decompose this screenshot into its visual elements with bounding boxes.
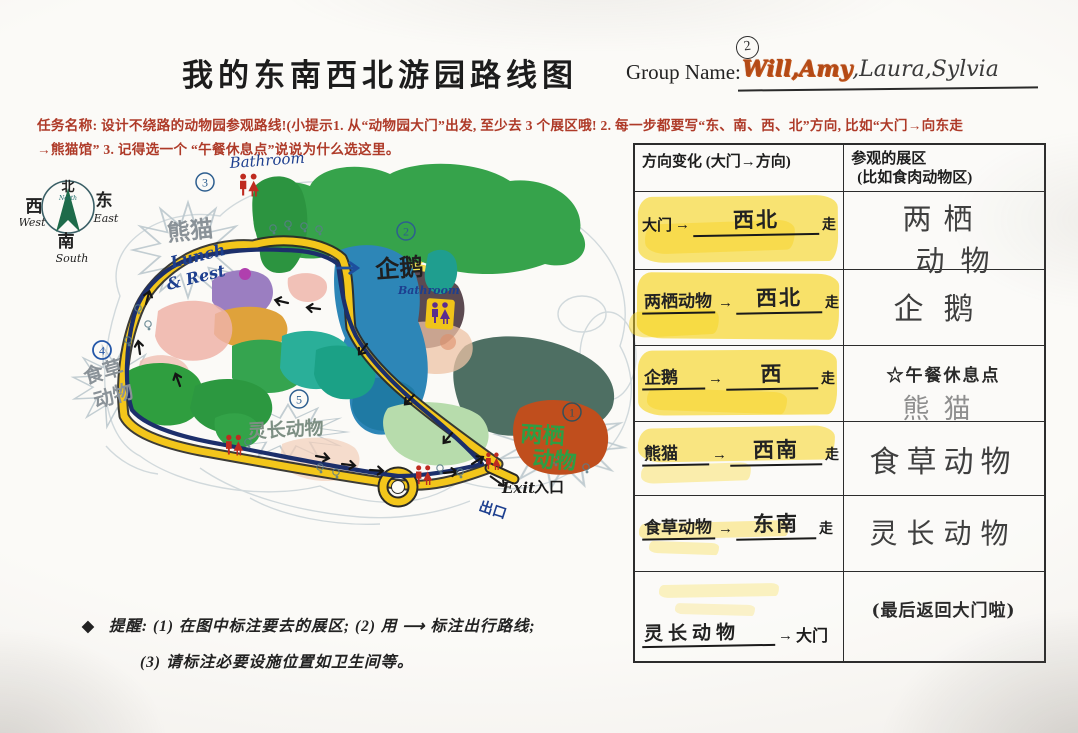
pink-area-left	[155, 301, 232, 361]
group-names-highlighted: Will,Amy	[742, 56, 852, 82]
magenta-spot	[239, 268, 251, 280]
route-direction: 西北	[693, 203, 820, 237]
lunch-stop-note: ☆午餐休息点	[844, 361, 1043, 386]
route-from: 两栖动物	[642, 286, 715, 314]
route-from: 食草动物	[642, 512, 715, 540]
bathroom-mid-label: Bathroom	[397, 284, 460, 297]
worksheet-photo: 我的东南西北游园路线图 Group Name: 2 Will,Amy,Laura…	[0, 0, 1078, 733]
penguin-label: 企鹅	[374, 253, 424, 284]
route-table: 方向变化 (大门→方向) 参观的展区 (比如食肉动物区) 大门→西北走 两栖动物…	[633, 143, 1046, 663]
route-from: 熊猫	[642, 438, 709, 466]
header-direction-column: 方向变化 (大门→方向)	[635, 145, 844, 191]
route-from: 大门	[642, 214, 672, 236]
exit-cn-label: 出口	[477, 498, 509, 523]
group-name-underline	[738, 86, 1038, 91]
marker-5: 5	[290, 390, 308, 408]
compass-east-en: East	[93, 212, 119, 225]
svg-text:1: 1	[569, 406, 575, 420]
trees-area-dark	[252, 176, 307, 273]
reminder-line2: (3) 请标注必要设施位置如卫生间等。	[140, 650, 413, 672]
diamond-bullet: ◆	[82, 618, 95, 635]
route-direction: 大门	[796, 622, 828, 647]
header-area-column: 参观的展区 (比如食肉动物区)	[844, 145, 1044, 191]
marker-3: 3	[196, 173, 214, 191]
group-names: Will,Amy,Laura,Sylvia	[742, 56, 999, 82]
pink-area-top	[288, 273, 327, 302]
table-row: 大门→西北走 两栖动物	[635, 191, 1044, 269]
table-header-row: 方向变化 (大门→方向) 参观的展区 (比如食肉动物区)	[635, 145, 1044, 191]
panda-label: 熊猫	[166, 215, 214, 246]
table-row: 熊猫→西南走 食草动物	[635, 421, 1044, 495]
return-note: (最后返回大门啦)	[844, 596, 1043, 621]
svg-text:4: 4	[99, 344, 105, 358]
route-direction: 西北	[736, 281, 823, 314]
reminder-line1: ◆提醒: (1) 在图中标注要去的展区; (2) 用 ⟶ 标注出行路线;	[82, 614, 536, 636]
area-visited: 两栖	[844, 196, 1043, 238]
table-row: 灵长动物→大门 (最后返回大门啦)	[635, 571, 1044, 661]
route-direction: 东南	[736, 507, 817, 540]
group-names-rest: ,Laura,Sylvia	[852, 57, 999, 82]
compass-west: 西	[26, 197, 43, 216]
route-direction: 西南	[730, 433, 823, 467]
area-visited: 企鹅	[844, 284, 1043, 328]
page-title: 我的东南西北游园路线图	[130, 50, 630, 95]
compass-south-en: South	[56, 252, 89, 265]
amphibian-label-1: 两栖	[520, 421, 566, 449]
entrance-label: 入口	[534, 479, 564, 496]
bathroom-top-label: Bathroom	[228, 149, 305, 172]
area-visited: 灵长动物	[844, 512, 1043, 552]
route-direction: 西	[726, 357, 819, 391]
area-visited: 熊猫	[844, 387, 1043, 426]
compass-north: 北	[61, 179, 74, 194]
svg-text:2: 2	[403, 225, 409, 239]
exit-en-label: Exit	[501, 479, 535, 497]
compass-north-en: North	[58, 195, 77, 202]
compass-south: 南	[58, 231, 75, 251]
compass-west-en: West	[20, 216, 46, 229]
table-row: 两栖动物→西北走 企鹅	[635, 269, 1044, 345]
area-visited: 食草动物	[844, 437, 1043, 481]
task-instructions-line1: 任务名称: 设计不绕路的动物园参观路线!(小提示1. 从“动物园大门”出发, 至…	[37, 114, 963, 134]
route-from: 灵长动物	[642, 617, 775, 648]
svg-text:5: 5	[296, 393, 302, 407]
zoo-map: 北 North 西 West 东 East 南 South 1 2 3 4 5 …	[20, 146, 640, 546]
table-row: 企鹅→西走 ☆午餐休息点熊猫	[635, 345, 1044, 421]
peach-spot	[440, 334, 456, 350]
svg-text:3: 3	[202, 176, 208, 190]
marker-4: 4	[93, 341, 111, 359]
compass: 北 North 西 West 东 East 南 South	[20, 179, 119, 265]
amphibian-label-2: 动物	[532, 446, 578, 474]
table-row: 食草动物→东南走 灵长动物	[635, 495, 1044, 571]
route-from: 企鹅	[642, 362, 705, 390]
restroom-sign-bg	[425, 298, 455, 330]
group-name-label: Group Name:	[626, 60, 741, 85]
compass-east: 东	[96, 190, 113, 210]
